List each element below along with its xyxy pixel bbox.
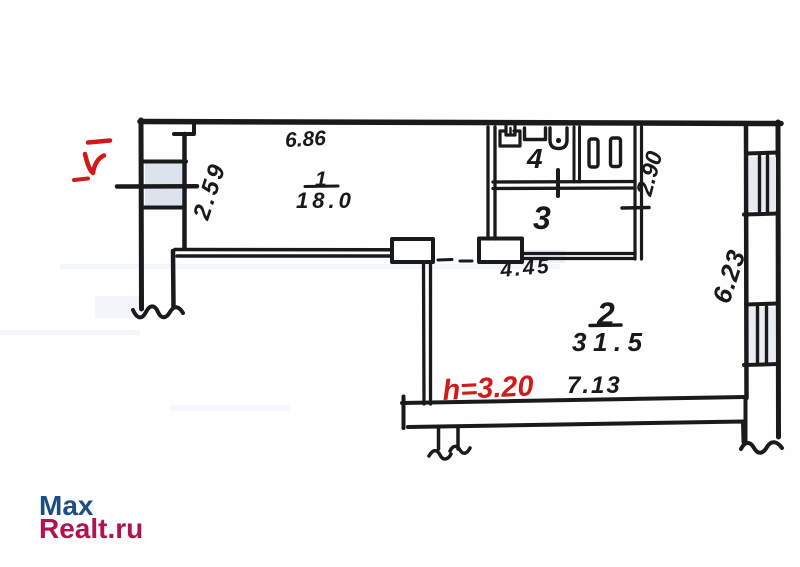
svg-text:18.0: 18.0 <box>296 188 355 213</box>
svg-text:3: 3 <box>533 200 551 236</box>
svg-text:4.45: 4.45 <box>498 255 552 282</box>
svg-text:6.86: 6.86 <box>284 127 326 152</box>
svg-text:7.13: 7.13 <box>567 372 622 399</box>
svg-text:4: 4 <box>526 143 543 174</box>
svg-text:h=3.20: h=3.20 <box>442 370 535 407</box>
svg-text:Realt.ru: Realt.ru <box>39 513 143 544</box>
svg-text:31.5: 31.5 <box>572 327 649 357</box>
